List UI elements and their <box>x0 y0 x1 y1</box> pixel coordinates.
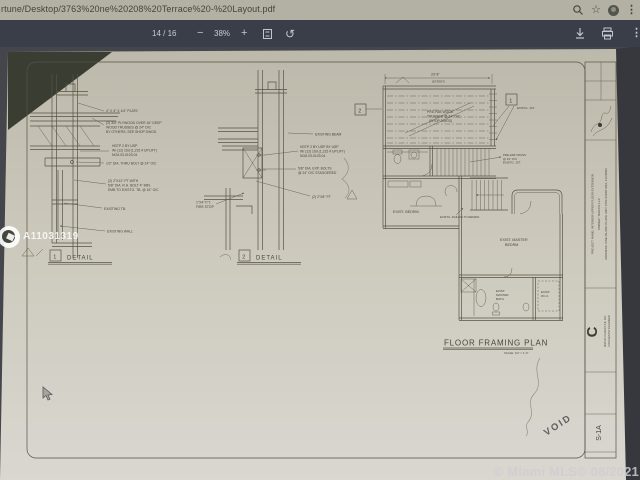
fit-page-icon <box>262 28 273 40</box>
svg-text:1"X4" P.T.: 1"X4" P.T. <box>196 201 211 205</box>
zoom-level[interactable]: 38% <box>214 20 230 47</box>
svg-text:(2) 2"X8" PT: (2) 2"X8" PT <box>312 195 331 199</box>
svg-text:ADDRESS: ONE ISLAND PLACE UN: ADDRESS: ONE ISLAND PLACE UNIT 3703 AVEN… <box>604 168 608 260</box>
svg-text:W.I.C.: W.I.C. <box>541 294 549 298</box>
svg-text:EXISTG. JST.: EXISTG. JST. <box>503 161 521 165</box>
svg-text:BY OTHERS, SEE SHOP DWGS.: BY OTHERS, SEE SHOP DWGS. <box>106 130 157 134</box>
svg-text:(2) 2"X12" PT WITH: (2) 2"X12" PT WITH <box>108 179 139 183</box>
svg-text:1/2" DIA. THRU BOLT @ 24" O/C: 1/2" DIA. THRU BOLT @ 24" O/C <box>106 162 157 166</box>
search-icon[interactable] <box>572 4 584 16</box>
svg-text:23'-8": 23'-8" <box>431 73 440 77</box>
plan-title: FLOOR FRAMING PLAN <box>444 339 548 348</box>
svg-text:1: 1 <box>53 255 56 261</box>
engineer-logo: C <box>584 326 601 337</box>
svg-text:W/ (12) 16d (1,215 # UPLIFT): W/ (12) 16d (1,215 # UPLIFT) <box>300 150 345 154</box>
fit-page-button[interactable] <box>262 20 273 47</box>
svg-text:EXIST. BEDRM.: EXIST. BEDRM. <box>393 210 420 214</box>
svg-text:WOOD TRUSSES @ 24" O/C: WOOD TRUSSES @ 24" O/C <box>106 126 152 130</box>
pdf-page-canvas: 4" X 4" X 1/4" PLATE (2) 3/4" PLYWOOD OV… <box>0 0 640 480</box>
mouse-cursor <box>42 386 56 402</box>
svg-text:4" X 4" X 1/4" PLATE: 4" X 4" X 1/4" PLATE <box>106 109 139 113</box>
zoom-out-button[interactable]: − <box>197 20 203 47</box>
listing-id-watermark: A11031319 <box>23 231 79 242</box>
pdf-menu-icon[interactable]: ⋮ <box>631 20 640 47</box>
rotate-button[interactable]: ↺ <box>285 20 295 47</box>
svg-text:@ 24" O/C STAGGERED: @ 24" O/C STAGGERED <box>298 171 337 175</box>
svg-text:PRE-FAB WOOD: PRE-FAB WOOD <box>427 110 454 114</box>
svg-text:EXISTG. JST.: EXISTG. JST. <box>517 106 535 110</box>
browser-menu-icon[interactable]: ⋮ <box>626 5 637 16</box>
svg-text:FIRE STOP: FIRE STOP <box>196 205 215 209</box>
svg-text:EXISTING BEAM: EXISTING BEAM <box>315 133 342 137</box>
svg-text:(EXTENT): (EXTENT) <box>432 80 445 84</box>
svg-text:5/8" DIA. EXP. BOLTS: 5/8" DIA. EXP. BOLTS <box>298 167 332 171</box>
svg-text:DETAIL: DETAIL <box>67 256 94 262</box>
bookmark-star-icon[interactable]: ☆ <box>591 5 601 16</box>
svg-text:5/8" DIA. R.H. BOLT 4" MIN.: 5/8" DIA. R.H. BOLT 4" MIN. <box>108 184 151 188</box>
svg-text:NOA 03-0103.04: NOA 03-0103.04 <box>112 153 137 157</box>
svg-text:DETAIL: DETAIL <box>256 256 283 262</box>
profile-avatar[interactable] <box>608 5 619 16</box>
download-button[interactable] <box>574 20 586 47</box>
svg-text:MILTON CLAROS P.E. INC.: MILTON CLAROS P.E. INC. <box>603 315 607 347</box>
svg-text:W/ (12) 16d (1,215 # UPLIFT): W/ (12) 16d (1,215 # UPLIFT) <box>112 149 157 153</box>
svg-text:OWNER: TEOFOX LLC: OWNER: TEOFOX LLC <box>597 197 601 230</box>
print-icon <box>601 27 614 40</box>
svg-text:EXISTING TB.: EXISTING TB. <box>104 207 126 211</box>
svg-text:(2) 3/4" PLYWOOD OVER 16" DEEP: (2) 3/4" PLYWOOD OVER 16" DEEP <box>106 121 162 125</box>
svg-text:NOA 03-0103.04: NOA 03-0103.04 <box>300 154 325 158</box>
svg-text:EMB TO EXISTG. TB. @ 16" O/C: EMB TO EXISTG. TB. @ 16" O/C <box>108 188 159 192</box>
svg-text:PROJECT NAME: INTERIOR UPPER: PROJECT NAME: INTERIOR UPPER FLOOR EXTEN… <box>591 174 595 254</box>
browser-address-bar[interactable]: rtune/Desktop/3763%20ne%20208%20Terrace%… <box>0 0 640 21</box>
download-icon <box>574 27 586 40</box>
svg-text:SCALE: 1/4" = 1'-0": SCALE: 1/4" = 1'-0" <box>504 351 528 355</box>
svg-text:BEDRM: BEDRM <box>505 243 518 247</box>
sheet-number: S-1A <box>596 425 603 441</box>
svg-text:(SHOP DWGS): (SHOP DWGS) <box>429 119 452 123</box>
svg-text:HDTP 2 BY USP: HDTP 2 BY USP <box>112 144 138 148</box>
page-indicator[interactable]: 14 / 16 <box>152 20 176 47</box>
svg-text:2: 2 <box>358 109 361 115</box>
url-text[interactable]: rtune/Desktop/3763%20ne%20208%20Terrace%… <box>1 4 275 14</box>
svg-text:HDTP 2 BY USP BY USP: HDTP 2 BY USP BY USP <box>300 145 339 149</box>
svg-text:CONSULTANT ENGINEER: CONSULTANT ENGINEER <box>607 315 611 347</box>
pdf-toolbar: 14 / 16 − 38% + ↺ ⋮ <box>0 20 640 47</box>
mls-credit-watermark: © Miami MLS© 08/2021 <box>494 464 639 479</box>
svg-text:BATH: BATH <box>496 297 504 301</box>
svg-text:1: 1 <box>509 99 512 105</box>
svg-text:EXISTING WALL: EXISTING WALL <box>107 230 133 234</box>
zoom-in-button[interactable]: + <box>241 20 247 47</box>
svg-text:2: 2 <box>242 255 245 261</box>
print-button[interactable] <box>601 20 614 47</box>
svg-text:EXIST. MASTER: EXIST. MASTER <box>500 238 528 242</box>
svg-text:EXISTG. RAILING TO REMAIN: EXISTG. RAILING TO REMAIN <box>440 215 479 219</box>
svg-text:TRUSSES @ 24" O/C: TRUSSES @ 24" O/C <box>427 115 461 119</box>
